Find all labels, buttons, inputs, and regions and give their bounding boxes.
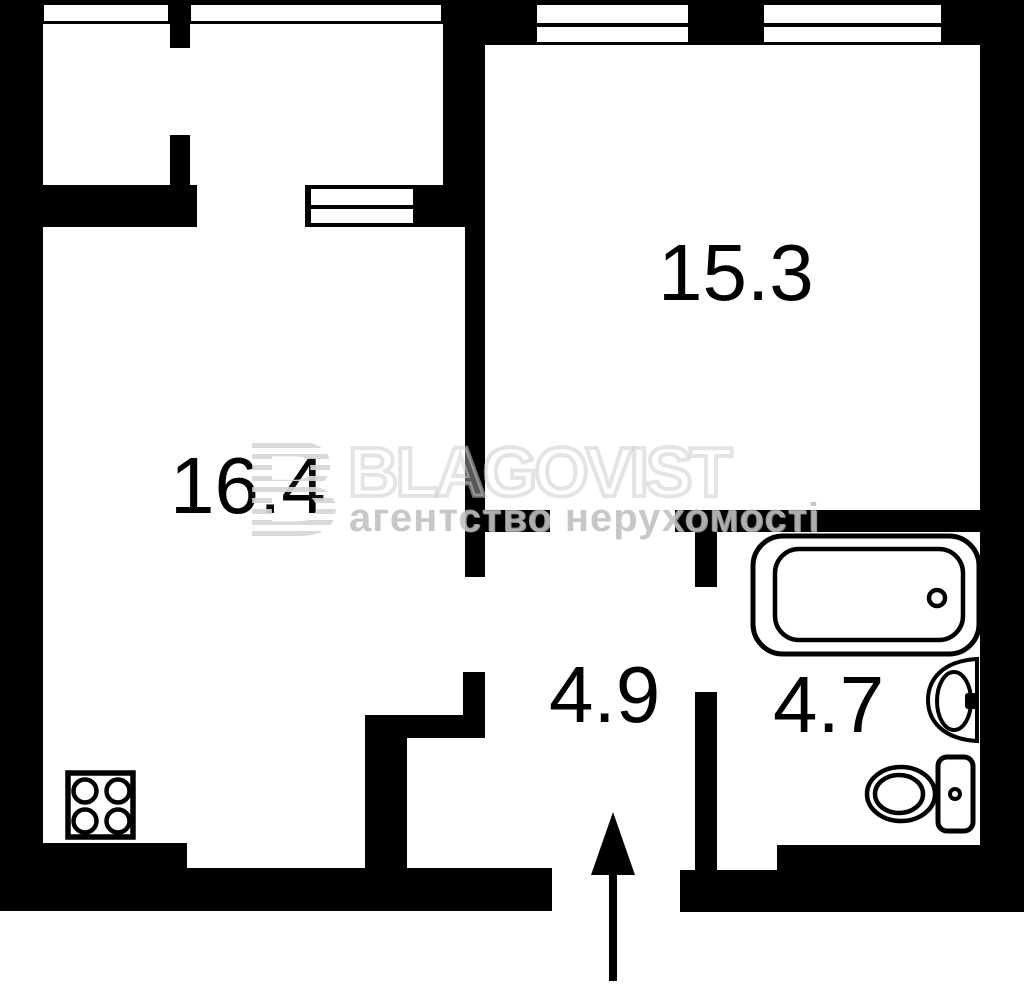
wall-loggia-bottom-right — [419, 185, 445, 227]
wall-right-outer — [980, 45, 1024, 912]
wall-hallway-lower — [365, 738, 407, 870]
toilet-icon — [862, 752, 978, 836]
window-icon — [537, 27, 688, 42]
wall-loggia-pier-top — [170, 0, 190, 48]
window-icon — [44, 5, 168, 21]
wall-central — [465, 227, 485, 577]
floor-plan: 16.4 15.3 4.9 4.7 B BLAGOVIST агентство … — [0, 0, 1024, 984]
stove-icon — [65, 770, 138, 842]
wall-bottom-entry-right — [680, 870, 777, 912]
wall-hallway-horizontal — [365, 715, 485, 738]
flush-button — [950, 789, 960, 799]
drain — [929, 590, 945, 606]
wall-bathroom-left-upper — [695, 532, 717, 587]
wall-bottom-left — [0, 843, 187, 911]
window-icon — [764, 5, 941, 23]
wall-loggia-pier-mid — [170, 135, 190, 185]
room-area-label-living: 16.4 — [170, 446, 326, 526]
faucet — [965, 693, 979, 709]
window-icon — [311, 189, 413, 205]
room-area-label-bedroom: 15.3 — [658, 233, 814, 313]
wall-central-upper — [443, 0, 485, 227]
wall-bottom-bathroom — [777, 845, 1024, 912]
window-icon — [311, 209, 413, 223]
room-area-label-hallway: 4.9 — [549, 655, 660, 735]
wall-bedroom-bottom-stub — [485, 510, 550, 532]
wall-bottom-mid — [187, 868, 552, 911]
window-icon — [764, 27, 941, 42]
wall-bathroom-left-lower — [695, 692, 717, 870]
window-icon — [537, 5, 688, 23]
wall-bathroom-top — [675, 510, 980, 532]
entrance-arrow-icon — [588, 808, 638, 984]
window-icon — [191, 5, 441, 21]
watermark: B BLAGOVIST агентство нерухомості — [0, 0, 1024, 984]
room-area-label-bathroom: 4.7 — [773, 665, 884, 745]
wall-loggia-bottom-left — [43, 185, 197, 227]
watermark-brand-text: BLAGOVIST — [348, 437, 729, 507]
washbasin-icon — [925, 656, 980, 744]
bathtub-icon — [750, 533, 982, 657]
wall-left-outer — [0, 0, 43, 911]
